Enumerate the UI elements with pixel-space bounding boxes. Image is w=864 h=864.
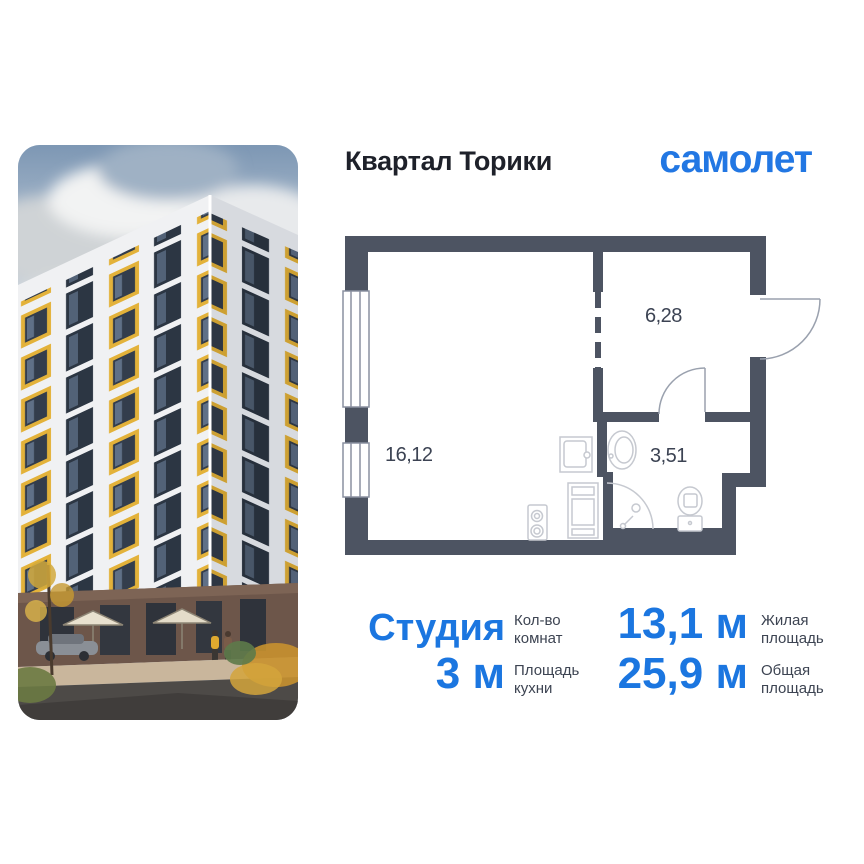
samolet-logo: самолет bbox=[659, 138, 812, 182]
room-area-hall: 6,28 bbox=[645, 305, 682, 327]
spec-total-value: 25,9 м bbox=[558, 652, 748, 696]
window-icon bbox=[343, 291, 369, 497]
spec-rooms-value: Студия bbox=[330, 606, 505, 650]
plan-walls bbox=[345, 236, 766, 555]
kitchen-sink-icon bbox=[560, 437, 592, 472]
property-card: Квартал Торики самолет bbox=[0, 0, 864, 864]
spec-total-label: Общая площадь bbox=[761, 662, 841, 698]
room-area-bath: 3,51 bbox=[650, 445, 687, 467]
spec-living-label: Жилая площадь bbox=[761, 612, 839, 648]
stove-icon bbox=[528, 505, 547, 540]
bathroom-door-icon bbox=[659, 368, 705, 414]
entrance-door-icon bbox=[760, 299, 820, 359]
toilet-icon bbox=[678, 487, 702, 531]
room-area-living: 16,12 bbox=[385, 444, 433, 466]
project-title: Квартал Торики bbox=[345, 146, 552, 177]
spec-living-value: 13,1 м bbox=[558, 602, 748, 646]
shower-icon bbox=[607, 483, 653, 529]
spec-kitchen-value: 3 м bbox=[330, 652, 505, 696]
fridge-icon bbox=[568, 483, 598, 538]
building-render-graphic bbox=[18, 145, 298, 720]
floor-plan: 16,12 6,28 3,51 bbox=[330, 225, 860, 570]
sink-icon bbox=[608, 431, 636, 469]
building-photo bbox=[18, 145, 298, 720]
